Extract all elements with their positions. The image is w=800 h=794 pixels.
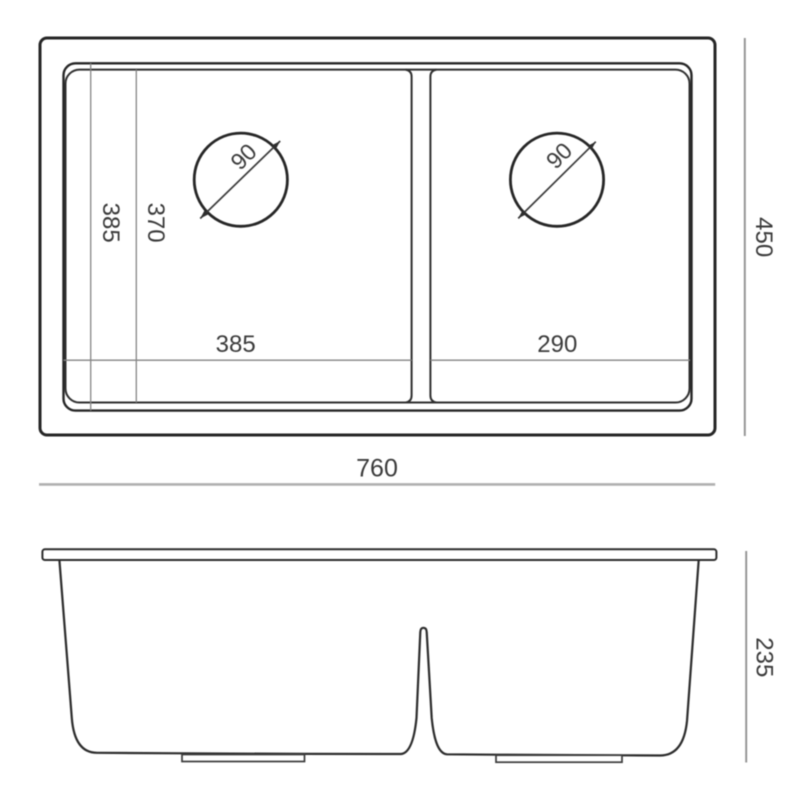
svg-text:450: 450	[750, 217, 777, 257]
svg-text:760: 760	[356, 455, 398, 483]
svg-text:90: 90	[225, 138, 261, 174]
svg-text:90: 90	[541, 137, 577, 173]
svg-text:290: 290	[537, 331, 577, 358]
svg-text:385: 385	[216, 331, 256, 358]
svg-text:385: 385	[97, 203, 124, 243]
svg-text:370: 370	[142, 203, 169, 243]
svg-text:235: 235	[750, 637, 777, 677]
